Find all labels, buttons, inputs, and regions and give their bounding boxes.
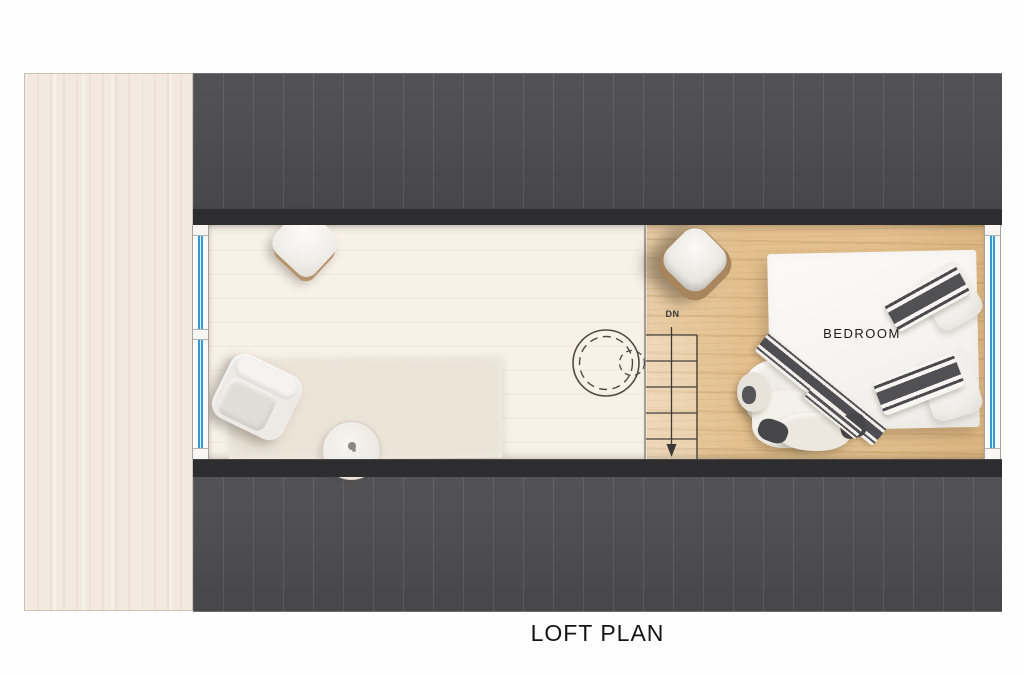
- wall-bottom: [193, 459, 1002, 477]
- window-glass-line: [198, 228, 203, 456]
- roof-panel-top: [193, 73, 1002, 208]
- window-mullion: [985, 448, 1000, 459]
- deck-strip: [24, 73, 193, 611]
- side-table-handle: [348, 442, 356, 450]
- window-right: [984, 225, 1001, 459]
- duvet-dark-fold: [742, 386, 756, 404]
- window-mullion: [985, 225, 1000, 236]
- window-left: [192, 225, 209, 459]
- staircase-down: [646, 308, 699, 459]
- dashed-circle-symbol: [571, 328, 647, 399]
- window-mullion: [193, 448, 208, 459]
- window-mullion: [193, 329, 208, 340]
- window-glass-line: [990, 228, 995, 456]
- plan-title: LOFT PLAN: [193, 620, 1002, 647]
- roof-panel-bottom: [193, 477, 1002, 612]
- stairs-down-label: DN: [646, 309, 699, 319]
- wall-top: [193, 208, 1002, 225]
- window-mullion: [193, 225, 208, 236]
- loft-floor-plan: DN BEDROOM LOFT PLAN: [0, 0, 1024, 675]
